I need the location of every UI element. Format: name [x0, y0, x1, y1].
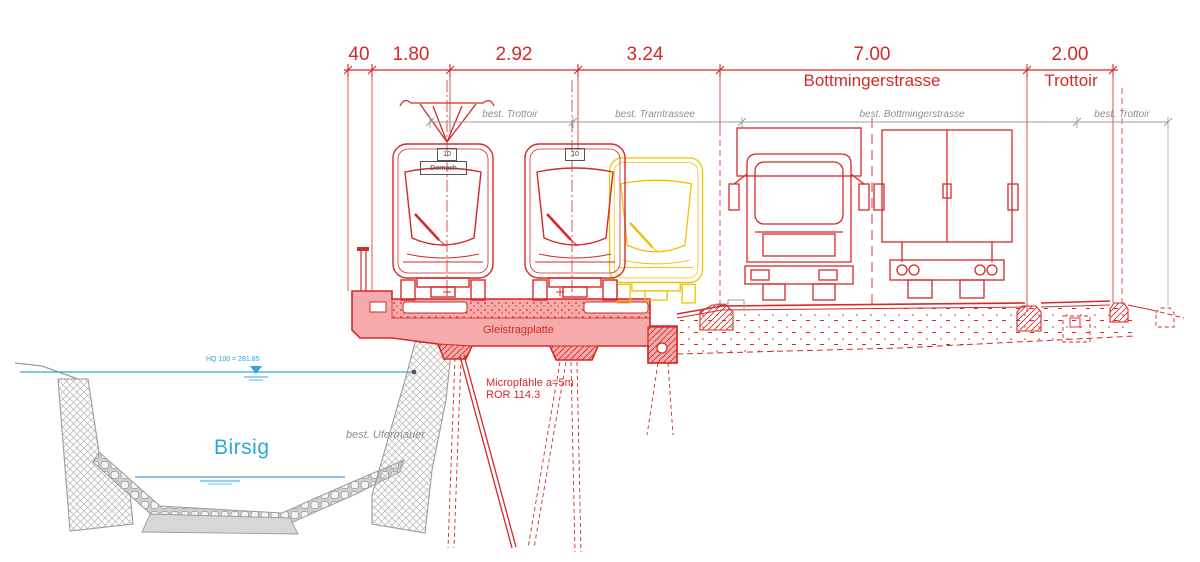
dimension-label-180: 1.80	[393, 45, 430, 64]
sleeper-right	[584, 302, 648, 313]
existing-trottoir-right-label: best. Trottoir	[1094, 110, 1149, 120]
slab-label: Gleistragplatte	[483, 325, 554, 336]
truck-front-view	[729, 128, 869, 300]
water-level-symbol	[250, 366, 262, 374]
slab-edge-recess	[370, 302, 386, 312]
tram2-line-number-sign: 10	[565, 148, 585, 161]
dimension-label-40: 40	[348, 45, 369, 64]
drain-pipe	[657, 343, 667, 353]
flood-level-label: HQ 100 = 281.85	[206, 356, 260, 363]
truck-rear-view	[874, 130, 1018, 298]
curb-road-sidewalk	[1017, 306, 1041, 331]
dimension-chain	[344, 64, 1122, 312]
existing-tramtrassee-label: best. Tramtrassee	[615, 110, 695, 120]
existing-trottoir-left-label: best. Trottoir	[482, 110, 537, 120]
ground-line-left	[15, 363, 78, 379]
existing-curb-right-dashed	[1156, 308, 1174, 327]
slab-bracket-right	[550, 346, 598, 360]
drawing-canvas	[0, 0, 1200, 562]
cross-section-drawing: 40 1.80 2.92 3.24 7.00 2.00 Bottmingerst…	[0, 0, 1200, 562]
survey-crosses	[443, 288, 564, 296]
existing-bottmingerstrasse-label: best. Bottmingerstrasse	[859, 110, 964, 120]
dimension-label-292: 2.92	[496, 45, 533, 64]
dimension-label-324: 3.24	[627, 45, 664, 64]
sidewalk-surface	[1041, 301, 1110, 303]
curb-right-edge	[1110, 303, 1128, 322]
channel-lining	[93, 452, 404, 526]
slab-bracket-left	[438, 344, 472, 359]
street-name-label: Bottmingerstrasse	[804, 72, 941, 89]
existing-wall-label: best. Ufermauer	[346, 430, 425, 441]
micropiles-label-line2: ROR 114.3	[486, 390, 540, 401]
micropiles-label-line1: Micropfähle a=5m	[486, 378, 574, 389]
tram1-line-number-sign: 10	[437, 148, 457, 161]
track-slab	[352, 247, 677, 363]
sleeper-left	[403, 302, 467, 313]
tram1-destination-sign: Dornach	[420, 161, 467, 175]
water-level-anchor-dot	[412, 370, 417, 375]
dimension-label-700: 7.00	[854, 45, 891, 64]
extension-lines	[348, 70, 1122, 312]
sidewalk-name-label: Trottoir	[1044, 72, 1097, 89]
road-base	[677, 300, 1184, 354]
dimension-label-200: 2.00	[1052, 45, 1089, 64]
river-name-label: Birsig	[214, 437, 270, 458]
tram-future-yellow	[610, 158, 703, 303]
left-retaining-wall	[58, 379, 133, 531]
